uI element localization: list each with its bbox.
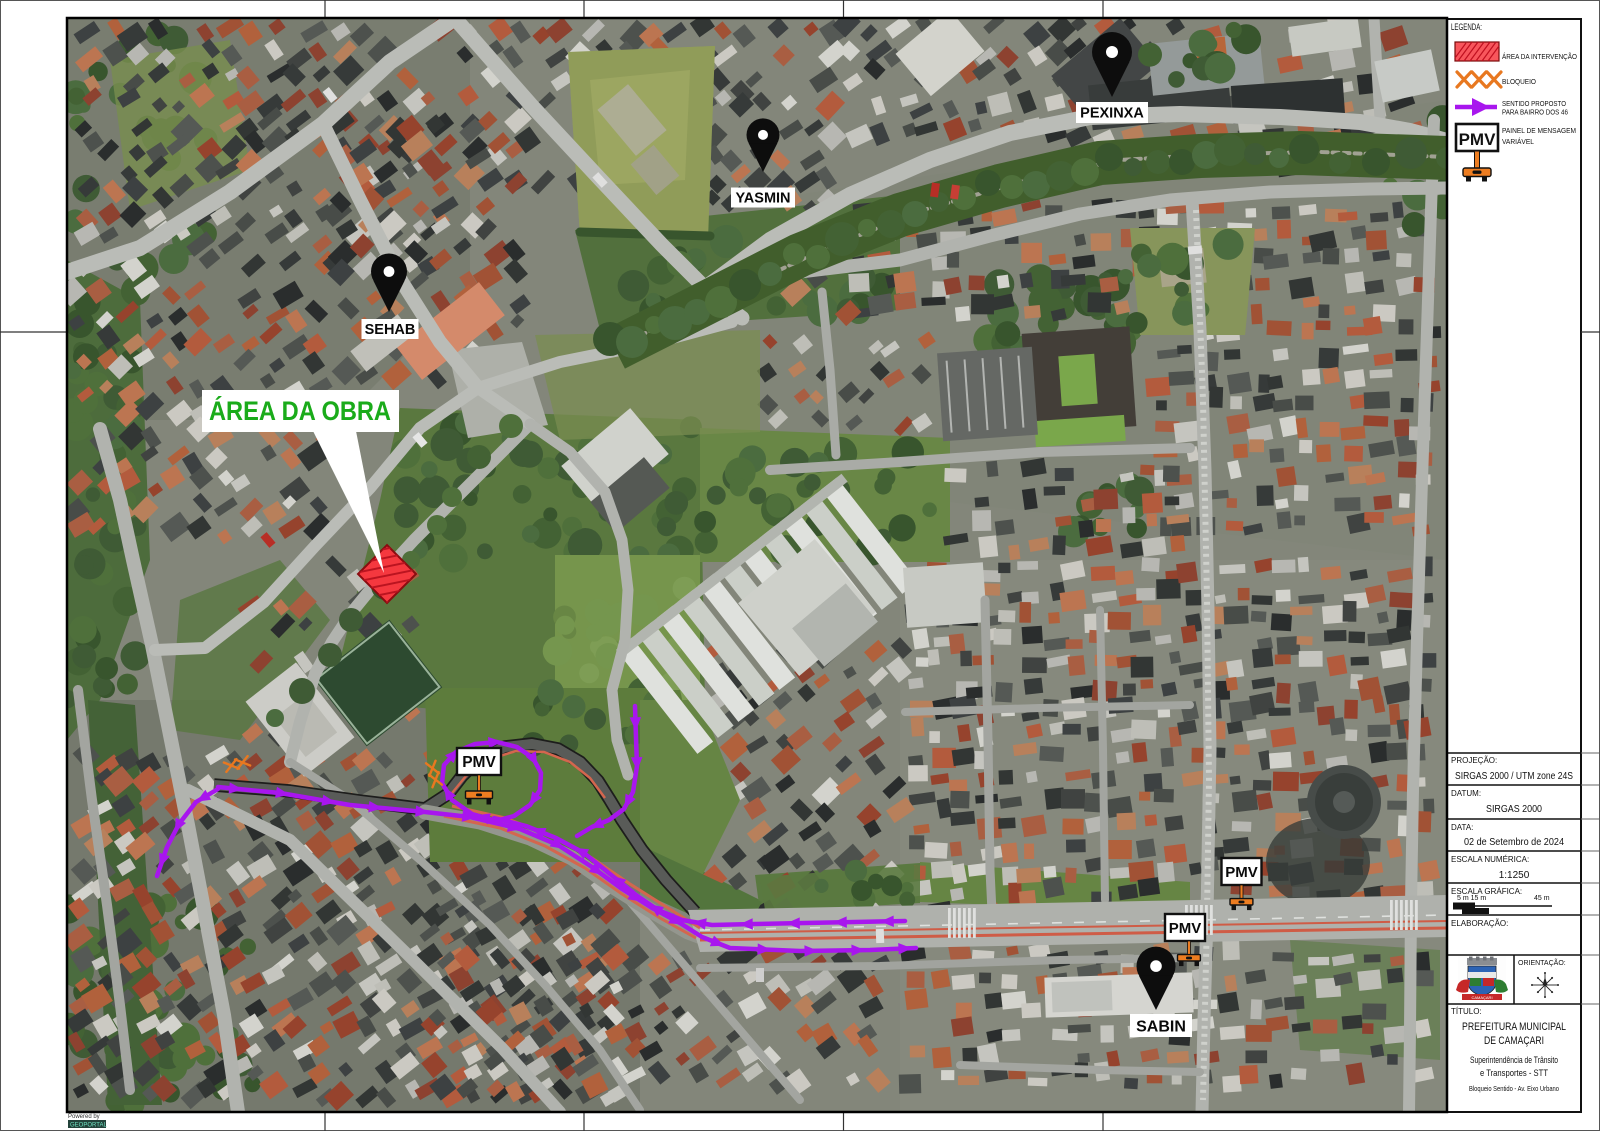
svg-text:PREFEITURA MUNICIPAL: PREFEITURA MUNICIPAL	[1462, 1021, 1566, 1033]
svg-text:ESCALA NUMÉRICA:: ESCALA NUMÉRICA:	[1451, 855, 1529, 864]
svg-text:PEXINXA: PEXINXA	[1080, 106, 1144, 122]
svg-text:PMV: PMV	[1459, 130, 1497, 149]
svg-text:e Transportes - STT: e Transportes - STT	[1480, 1068, 1548, 1079]
svg-text:CAMAÇARI: CAMAÇARI	[1471, 995, 1492, 1000]
svg-text:SIRGAS 2000 / UTM zone 24S: SIRGAS 2000 / UTM zone 24S	[1455, 771, 1573, 782]
svg-text:PMV: PMV	[1169, 920, 1202, 937]
svg-text:PMV: PMV	[1225, 864, 1258, 881]
svg-text:GEOPORTAL: GEOPORTAL	[70, 1123, 107, 1129]
svg-text:Powered by: Powered by	[68, 1114, 100, 1120]
svg-text:Bloqueio Sentido - Av. Eixo Ur: Bloqueio Sentido - Av. Eixo Urbano	[1469, 1084, 1559, 1093]
svg-text:1:1250: 1:1250	[1499, 870, 1530, 881]
svg-text:ORIENTAÇÃO:: ORIENTAÇÃO:	[1518, 958, 1566, 967]
svg-text:DATUM:: DATUM:	[1451, 789, 1481, 798]
svg-text:Superintendência de Trânsito: Superintendência de Trânsito	[1470, 1055, 1558, 1066]
svg-text:BLOQUEIO: BLOQUEIO	[1502, 77, 1536, 86]
svg-text:ÁREA DA OBRA: ÁREA DA OBRA	[209, 395, 391, 426]
svg-text:5 m 15 m: 5 m 15 m	[1457, 895, 1486, 902]
svg-text:45 m: 45 m	[1534, 895, 1550, 902]
svg-text:YASMIN: YASMIN	[735, 191, 790, 207]
svg-text:SEHAB: SEHAB	[365, 322, 416, 338]
svg-text:SIRGAS 2000: SIRGAS 2000	[1486, 804, 1542, 815]
svg-text:PAINEL DE MENSAGEM: PAINEL DE MENSAGEM	[1502, 126, 1576, 135]
svg-text:SABIN: SABIN	[1136, 1018, 1186, 1035]
svg-text:LEGENDA:: LEGENDA:	[1451, 22, 1482, 32]
svg-text:ELABORAÇÃO:: ELABORAÇÃO:	[1451, 919, 1508, 928]
svg-text:PMV: PMV	[462, 754, 496, 771]
svg-text:DE CAMAÇARI: DE CAMAÇARI	[1484, 1035, 1544, 1047]
svg-text:TÍTULO:: TÍTULO:	[1451, 1007, 1482, 1016]
svg-text:ÁREA DA INTERVENÇÃO: ÁREA DA INTERVENÇÃO	[1502, 52, 1577, 61]
svg-text:PROJEÇÃO:: PROJEÇÃO:	[1451, 756, 1497, 765]
svg-text:PARA BAIRRO DOS 46: PARA BAIRRO DOS 46	[1502, 108, 1568, 117]
svg-text:02 de Setembro de 2024: 02 de Setembro de 2024	[1464, 837, 1564, 848]
svg-text:DATA:: DATA:	[1451, 823, 1473, 832]
svg-text:VARIÁVEL: VARIÁVEL	[1502, 137, 1534, 146]
